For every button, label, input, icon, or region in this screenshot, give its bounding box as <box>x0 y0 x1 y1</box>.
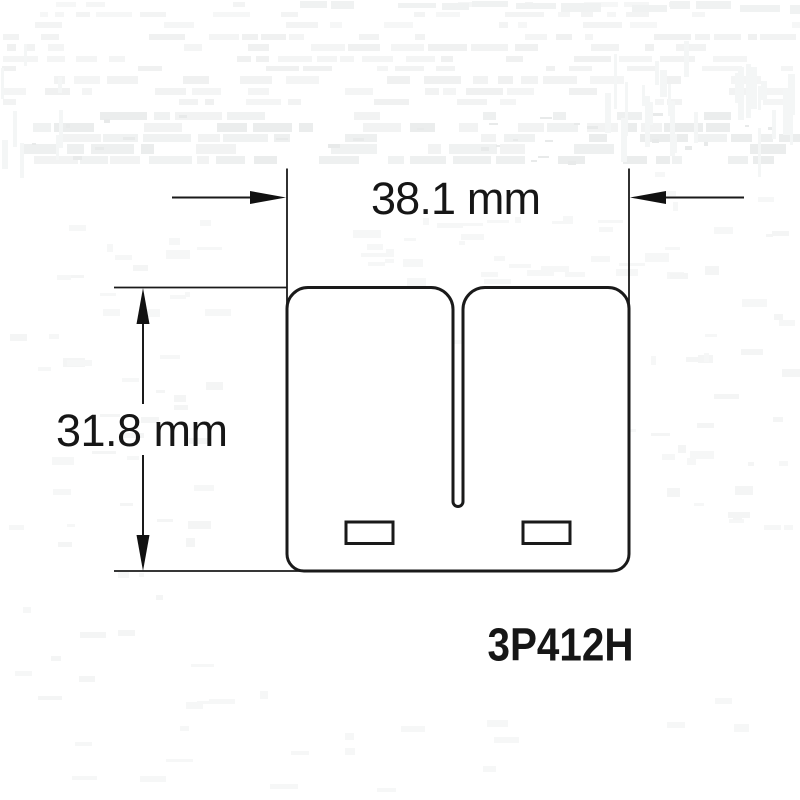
svg-text:38.1 mm: 38.1 mm <box>371 173 541 224</box>
svg-text:3P412H: 3P412H <box>488 619 634 671</box>
svg-text:31.8 mm: 31.8 mm <box>56 405 228 456</box>
